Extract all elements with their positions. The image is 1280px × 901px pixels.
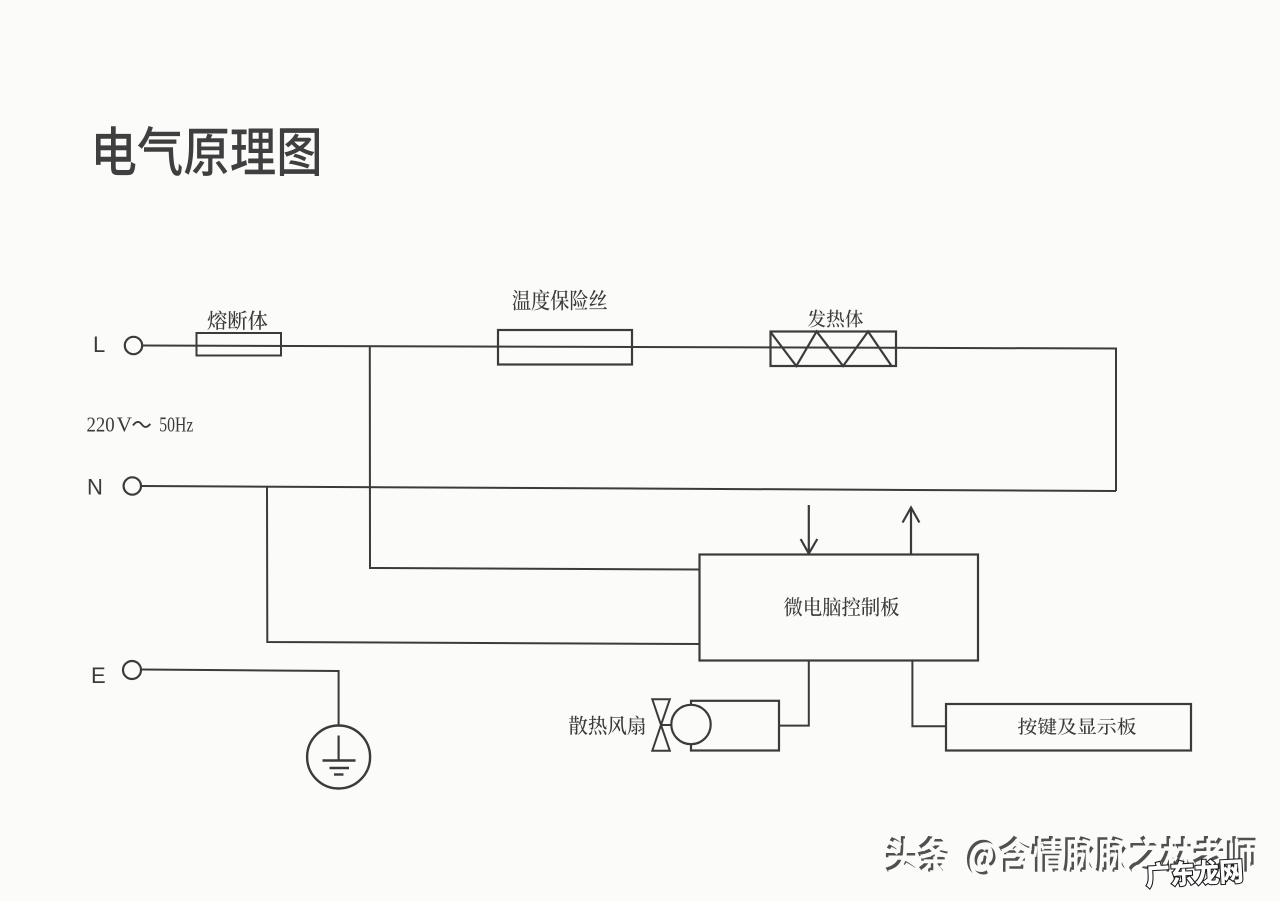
svg-text:L: L [93, 332, 105, 357]
svg-text:N: N [87, 475, 103, 500]
svg-text:V: V [117, 413, 133, 437]
svg-text:50Hz: 50Hz [159, 413, 193, 437]
svg-text:E: E [91, 663, 106, 688]
svg-text:220: 220 [87, 413, 115, 437]
